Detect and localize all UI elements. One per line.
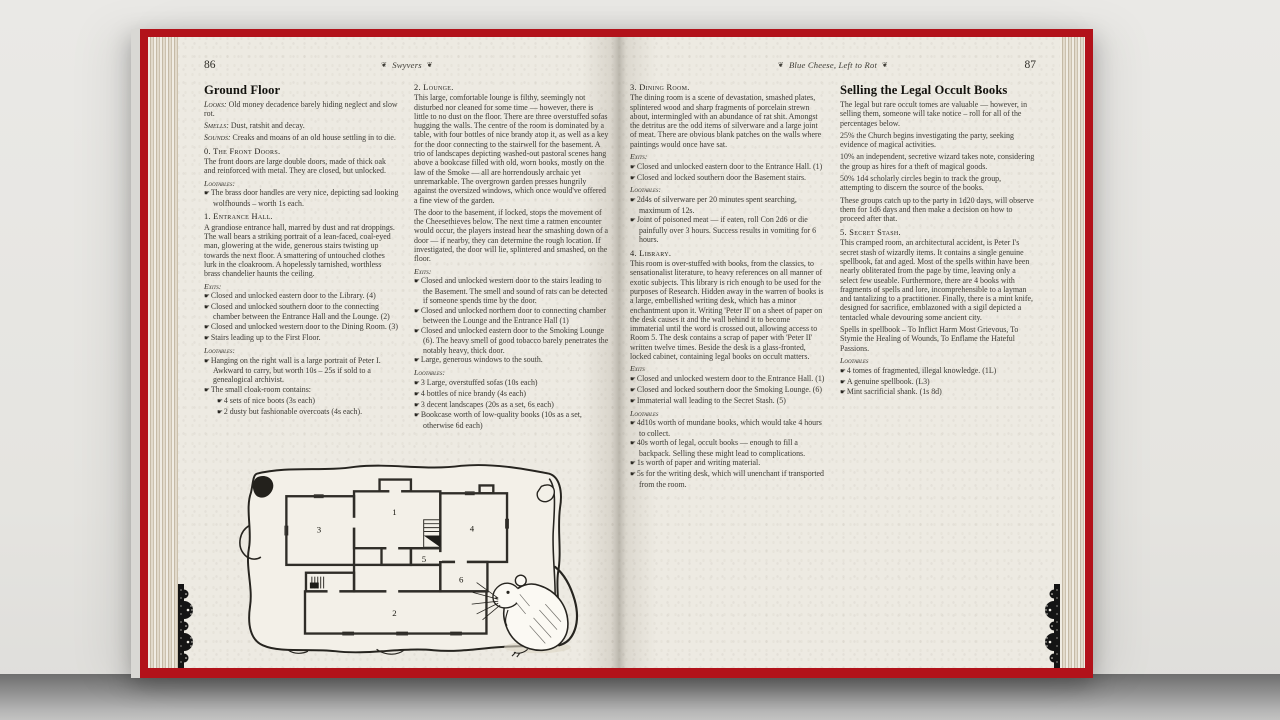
room-body-front-doors: The front doors are large double doors, … [204,157,399,176]
selling-paragraph: 50% 1d4 scholarly circles begin to track… [840,174,1035,193]
manicule-icon: ☛ [204,387,210,394]
list-item: ☛Joint of poisoned meat — if eaten, roll… [630,215,825,244]
manicule-icon: ☛ [204,190,210,197]
manicule-icon: ☛ [204,304,210,311]
left-page-number: 86 [204,59,246,71]
page-block-edge-left [148,37,178,668]
manicule-icon: ☛ [840,368,846,375]
list-item: ☛Hanging on the right wall is a large po… [204,356,399,385]
right-running-header: ❦Blue Cheese, Left to Rot❦ [672,60,994,70]
exits-label: Exits: [414,267,609,276]
lootables-label: Lootables: [204,179,399,188]
manicule-icon: ☛ [630,197,636,204]
list-item: ☛Closed and unlocked eastern door to the… [414,326,609,355]
manicule-icon: ☛ [840,389,846,396]
list-item: ☛A genuine spellbook. (L3) [840,377,1035,387]
fleuron-icon: ❦ [882,61,888,69]
room-number-3: 3 [317,525,322,535]
manicule-icon: ☛ [630,376,636,383]
manicule-icon: ☛ [840,379,846,386]
left-page: 86 ❦Swyvers❦ Ground Floor Looks: Old mon… [204,59,610,430]
selling-paragraph: 10% an independent, secretive wizard tak… [840,152,1035,171]
list-item: ☛Closed and locked southern door the Bas… [630,173,825,183]
room-title-secret-stash: 5. Secret Stash. [840,228,1035,237]
room-body-lounge-1: This large, comfortable lounge is filthy… [414,93,609,205]
right-page: ❦Blue Cheese, Left to Rot❦ 87 3. Dining … [630,59,1036,489]
stat-sounds: Sounds: Creaks and moans of an old house… [204,133,399,142]
exits-label: Exits: [630,152,825,161]
manicule-icon: ☛ [414,357,420,364]
manicule-icon: ☛ [630,217,636,224]
list-item: ☛The brass door handles are very nice, d… [204,188,399,208]
manicule-icon: ☛ [217,409,223,416]
stat-looks: Looks: Old money decadence barely hiding… [204,100,399,119]
list-item: ☛1s worth of paper and writing material. [630,458,825,468]
room-title-entrance-hall: 1. Entrance Hall. [204,212,399,221]
manicule-icon: ☛ [204,293,210,300]
lace-ornament-left [178,584,205,668]
room-body-dining-room: The dining room is a scene of devastatio… [630,93,825,149]
lace-ornament-right [1033,584,1060,668]
page-block-edge-right [1060,37,1085,668]
right-page-number: 87 [994,59,1036,71]
fleuron-icon: ❦ [778,61,784,69]
list-item: ☛Closed and unlocked southern door to th… [204,302,399,322]
running-header-text: Swyvers [392,60,422,70]
room-body-secret-stash: This cramped room, an architectural acci… [840,238,1035,322]
manicule-icon: ☛ [414,308,420,315]
list-item: ☛4d10s worth of mundane books, which wou… [630,418,825,438]
room-number-1: 1 [392,507,396,517]
lootables-label: Lootables: [630,185,825,194]
open-book: 86 ❦Swyvers❦ Ground Floor Looks: Old mon… [131,29,1093,678]
manicule-icon: ☛ [630,420,636,427]
manicule-icon: ☛ [630,460,636,467]
room-body-entrance-hall: A grandiose entrance hall, marred by dus… [204,223,399,279]
section-heading-selling-occult-books: Selling the Legal Occult Books [840,83,1035,97]
manicule-icon: ☛ [204,335,210,342]
left-page-column-1: Ground Floor Looks: Old money decadence … [204,83,399,430]
fleuron-icon: ❦ [381,61,387,69]
manicule-icon: ☛ [204,324,210,331]
lootables-label: Lootables: [204,346,399,355]
list-item: ☛5s for the writing desk, which will une… [630,469,825,489]
right-page-column-1: 3. Dining Room. The dining room is a sce… [630,83,825,489]
lootables-label: Lootables [840,356,1035,365]
room-title-lounge: 2. Lounge. [414,83,609,92]
list-item: ☛Immaterial wall leading to the Secret S… [630,396,825,406]
list-item: ☛Closed and locked southern door the Smo… [630,385,825,395]
room-title-dining-room: 3. Dining Room. [630,83,825,92]
manicule-icon: ☛ [630,398,636,405]
room-title-front-doors: 0. The Front Doors. [204,147,399,156]
manicule-icon: ☛ [414,278,420,285]
room-number-2: 2 [392,608,396,618]
room-title-library: 4. Library. [630,249,825,258]
list-item: ☛4 bottles of nice brandy (4s each) [414,389,609,399]
room-number-4: 4 [470,524,475,534]
room-body-library: This room is over-stuffed with books, fr… [630,259,825,361]
list-item: ☛Closed and unlocked western door to the… [630,374,825,384]
manicule-icon: ☛ [414,412,420,419]
list-item: ☛3 decent landscapes (20s as a set, 6s e… [414,400,609,410]
manicule-icon: ☛ [414,328,420,335]
list-item: ☛Bookcase worth of low-quality books (10… [414,410,609,430]
selling-paragraph: These groups catch up to the party in 1d… [840,196,1035,224]
manicule-icon: ☛ [217,398,223,405]
room-number-5: 5 [422,554,427,564]
list-subitem: ☛4 sets of nice boots (3s each) [217,396,399,406]
running-header-text: Blue Cheese, Left to Rot [789,60,877,70]
list-item: ☛Closed and unlocked western door to the… [414,276,609,305]
list-item: ☛4 tomes of fragmented, illegal knowledg… [840,366,1035,376]
page-spread: 86 ❦Swyvers❦ Ground Floor Looks: Old mon… [178,37,1060,668]
lootables-label: Lootables [630,409,825,418]
list-subitem: ☛2 dusty but fashionable overcoats (4s e… [217,407,399,417]
list-item: ☛Closed and unlocked eastern door to the… [204,291,399,301]
list-item: ☛Large, generous windows to the south. [414,355,609,365]
fleuron-icon: ❦ [427,61,433,69]
right-page-column-2: Selling the Legal Occult Books The legal… [840,83,1035,489]
manicule-icon: ☛ [414,391,420,398]
list-item: ☛Stairs leading up to the First Floor. [204,333,399,343]
list-item: ☛Closed and unlocked western door to the… [204,322,399,332]
manicule-icon: ☛ [630,175,636,182]
room-number-6: 6 [459,575,464,585]
exits-label: Exits: [204,282,399,291]
selling-paragraph: The legal but rare occult tomes are valu… [840,100,1035,128]
list-item: ☛The small cloak-room contains: [204,385,399,395]
list-item: ☛Closed and unlocked northern door to co… [414,306,609,326]
spellbook-paragraph: Spells in spellbook – To Inflict Harm Mo… [840,325,1035,353]
right-page-header: ❦Blue Cheese, Left to Rot❦ 87 [630,59,1036,77]
room-body-lounge-2: The door to the basement, if locked, sto… [414,208,609,264]
manicule-icon: ☛ [630,440,636,447]
section-heading-ground-floor: Ground Floor [204,83,399,97]
manicule-icon: ☛ [630,471,636,478]
list-item: ☛40s worth of legal, occult books — enou… [630,438,825,458]
manicule-icon: ☛ [414,380,420,387]
manicule-icon: ☛ [414,402,420,409]
left-page-column-2: 2. Lounge. This large, comfortable loung… [414,83,609,430]
left-page-header: 86 ❦Swyvers❦ [204,59,610,77]
stat-smells: Smells: Dust, ratshit and decay. [204,121,399,130]
desk-shadow-band [0,674,1280,720]
manicule-icon: ☛ [630,387,636,394]
exits-label: Exits [630,364,825,373]
list-item: ☛2d4s of silverware per 20 minutes spent… [630,195,825,215]
lootables-label: Lootables: [414,368,609,377]
list-item: ☛Closed and unlocked eastern door to the… [630,162,825,172]
manicule-icon: ☛ [630,164,636,171]
list-item: ☛Mint sacrificial shank. (1s 8d) [840,387,1035,397]
selling-paragraph: 25% the Church begins investigating the … [840,131,1035,150]
manicule-icon: ☛ [204,358,210,365]
list-item: ☛3 Large, overstuffed sofas (10s each) [414,378,609,388]
left-running-header: ❦Swyvers❦ [246,60,568,70]
ground-floor-map-illustration: 1 2 3 4 5 6 [224,457,590,661]
